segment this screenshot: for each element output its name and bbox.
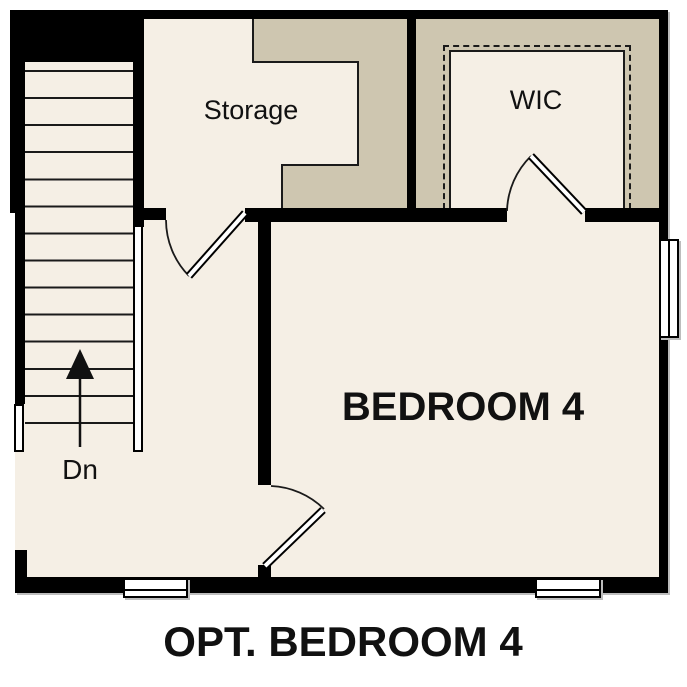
wall-hall-bedroom: [258, 214, 271, 485]
bedroom-label: BEDROOM 4: [313, 385, 613, 430]
window-bottom-right: [535, 578, 601, 598]
bedroom-door-opening: [258, 485, 271, 565]
wall-bedroom-door-stub: [258, 565, 271, 579]
floor-plan: Storage WIC BEDROOM 4 Dn OPT. BEDROOM 4: [0, 0, 687, 687]
window-bottom-left: [123, 578, 188, 598]
window-right: [659, 239, 679, 338]
stair-treads: [25, 70, 133, 449]
stairs-dn-label: Dn: [50, 454, 110, 486]
wall-wic-door-right-jamb: [585, 208, 668, 222]
wall-hall-storage: [245, 208, 507, 222]
wall-left-lower-stub: [15, 550, 27, 577]
wall-stair-right: [133, 62, 144, 227]
storage-lowclearance-right: [358, 62, 407, 165]
storage-door-opening: [166, 206, 245, 222]
plan-title: OPT. BEDROOM 4: [93, 618, 593, 666]
storage-lowclearance-bottom: [282, 165, 407, 209]
window-mullion: [537, 589, 599, 591]
wic-door-opening: [507, 208, 585, 222]
storage-lowclearance-top: [253, 19, 407, 62]
wall-storage-door-left-jamb: [133, 208, 166, 220]
window-stair-left: [14, 404, 24, 452]
wall-stair-header: [10, 10, 144, 62]
wall-storage-wic: [407, 19, 416, 222]
window-mullion: [668, 241, 670, 336]
window-mullion: [125, 589, 186, 591]
stair-railing: [133, 225, 143, 452]
wall-left-upper: [10, 10, 25, 213]
storage-label: Storage: [181, 95, 321, 126]
stairwell: [25, 62, 133, 449]
wall-left-mid: [15, 213, 25, 404]
wic-label: WIC: [486, 85, 586, 116]
wic-interior: [449, 50, 625, 209]
